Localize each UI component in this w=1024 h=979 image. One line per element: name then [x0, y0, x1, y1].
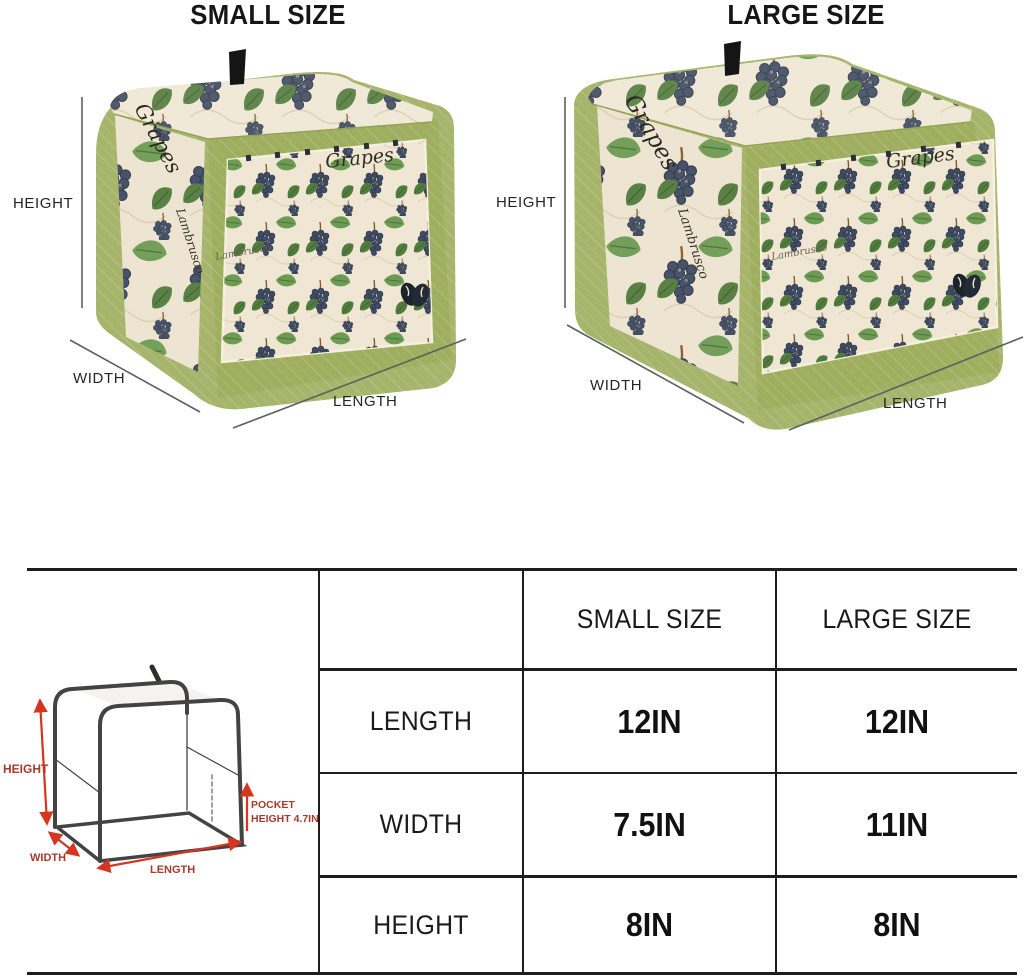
hanging-tab — [229, 49, 246, 85]
length-large-value: 12IN — [787, 671, 1008, 772]
width-small-value: 7.5IN — [534, 774, 765, 875]
hanging-tab — [724, 41, 741, 76]
height-large-value: 8IN — [787, 878, 1008, 972]
small-cover-photo: Grapes Lambrusco Grapes Lambrusco — [88, 42, 468, 417]
large-width-label: WIDTH — [590, 377, 642, 394]
large-size-title: LARGE SIZE — [691, 0, 921, 30]
small-height-label: HEIGHT — [13, 195, 73, 212]
width-large-value: 11IN — [787, 774, 1008, 875]
length-small-value: 12IN — [534, 671, 765, 772]
large-length-label: LENGTH — [883, 395, 947, 412]
small-width-label: WIDTH — [73, 370, 125, 387]
table-row-label-width: WIDTH — [328, 774, 514, 875]
table-col-border-3 — [775, 568, 777, 975]
size-table: SMALL SIZE LARGE SIZE LENGTH 12IN 12IN W… — [27, 568, 1017, 975]
small-size-title: SMALL SIZE — [153, 0, 383, 30]
large-height-label: HEIGHT — [496, 194, 556, 211]
table-row-label-length: LENGTH — [328, 671, 514, 772]
product-size-chart-image: SMALL SIZE LARGE SIZE — [0, 0, 1024, 979]
height-small-value: 8IN — [534, 878, 765, 972]
small-length-label: LENGTH — [333, 393, 397, 410]
table-header-small: SMALL SIZE — [534, 571, 765, 668]
table-row-label-height: HEIGHT — [328, 878, 514, 972]
table-col-border-1 — [318, 568, 320, 975]
table-col-border-2 — [522, 568, 524, 975]
small-cover-front-panel: Grapes Lambrusco — [214, 132, 438, 367]
table-header-large: LARGE SIZE — [787, 571, 1008, 668]
